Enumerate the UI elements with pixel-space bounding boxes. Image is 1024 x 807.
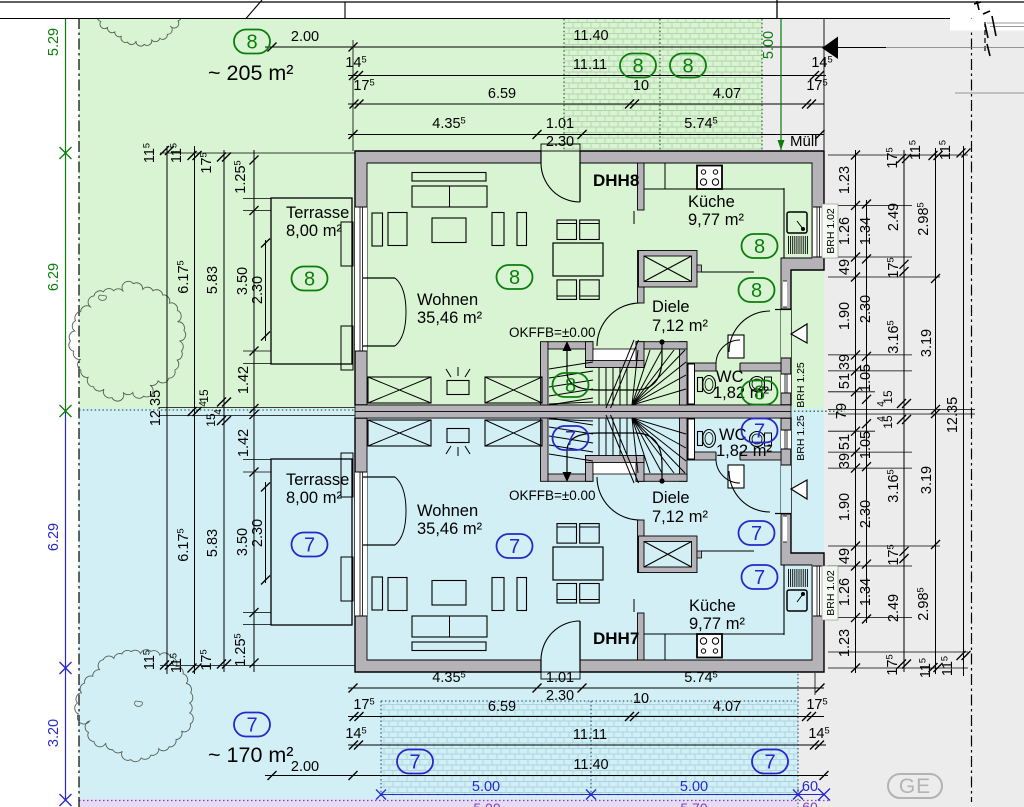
svg-text:39: 39 — [837, 453, 853, 469]
svg-text:2.49: 2.49 — [886, 203, 902, 231]
svg-text:3.19: 3.19 — [919, 329, 935, 357]
svg-text:49: 49 — [837, 548, 853, 564]
svg-text:11.40: 11.40 — [573, 28, 608, 44]
svg-text:5.00: 5.00 — [680, 779, 708, 795]
svg-text:3.50: 3.50 — [235, 267, 251, 295]
svg-text:15: 15 — [197, 389, 211, 403]
svg-text:BRH 1.25: BRH 1.25 — [795, 362, 807, 408]
svg-text:2.30: 2.30 — [858, 295, 874, 323]
svg-text:Diele: Diele — [652, 489, 690, 507]
svg-text:8,00 m²: 8,00 m² — [286, 489, 342, 507]
svg-text:~ 205 m²: ~ 205 m² — [208, 61, 293, 85]
svg-text:12.35: 12.35 — [148, 390, 164, 426]
svg-text:GE: GE — [899, 775, 931, 798]
svg-text:5.70: 5.70 — [680, 800, 707, 807]
svg-text:Müll: Müll — [790, 133, 818, 150]
svg-text:4.07: 4.07 — [713, 86, 741, 102]
svg-text:~ 170 m²: ~ 170 m² — [208, 743, 293, 767]
svg-text:7: 7 — [246, 715, 257, 737]
svg-text:8: 8 — [304, 269, 315, 291]
svg-text:Küche: Küche — [688, 193, 735, 211]
svg-text:1.90: 1.90 — [837, 302, 853, 330]
svg-text:79: 79 — [834, 403, 850, 419]
svg-text:1.01: 1.01 — [546, 116, 574, 132]
svg-text:7: 7 — [754, 421, 765, 443]
svg-text:6.59: 6.59 — [488, 86, 516, 102]
svg-text:4.07: 4.07 — [713, 699, 741, 715]
svg-text:51: 51 — [837, 434, 853, 450]
svg-text:1.42: 1.42 — [236, 366, 252, 394]
svg-text:8: 8 — [509, 267, 520, 289]
svg-text:2.30: 2.30 — [250, 519, 266, 547]
svg-text:11.11: 11.11 — [573, 727, 607, 743]
svg-text:6.29: 6.29 — [46, 263, 62, 291]
svg-text:Terrasse: Terrasse — [286, 471, 349, 489]
svg-text:8,00 m²: 8,00 m² — [286, 222, 342, 240]
svg-text:BRH 1.25: BRH 1.25 — [795, 415, 807, 461]
svg-text:7,12 m²: 7,12 m² — [652, 317, 708, 335]
svg-text:1.23: 1.23 — [837, 629, 853, 657]
svg-text:4: 4 — [198, 401, 209, 407]
svg-text:Terrasse: Terrasse — [286, 204, 349, 222]
svg-text:4: 4 — [876, 416, 887, 422]
svg-text:8: 8 — [754, 383, 765, 405]
svg-text:7: 7 — [764, 752, 775, 774]
svg-text:5.29: 5.29 — [46, 28, 62, 56]
svg-text:5.00: 5.00 — [473, 800, 500, 807]
svg-text:5.83: 5.83 — [205, 529, 221, 557]
svg-text:1.23: 1.23 — [837, 166, 853, 194]
svg-text:7: 7 — [751, 523, 762, 545]
svg-text:DHH7: DHH7 — [593, 629, 639, 648]
svg-text:35,46 m²: 35,46 m² — [417, 309, 483, 327]
svg-text:4: 4 — [876, 401, 887, 407]
svg-text:9,77 m²: 9,77 m² — [688, 211, 744, 229]
svg-text:5.83: 5.83 — [205, 266, 221, 294]
svg-text:9,77 m²: 9,77 m² — [689, 615, 745, 633]
svg-text:35,46 m²: 35,46 m² — [417, 520, 483, 538]
svg-text:5.00: 5.00 — [472, 779, 500, 795]
svg-text:60: 60 — [802, 779, 818, 795]
svg-text:6.59: 6.59 — [488, 699, 516, 715]
svg-text:Wohnen: Wohnen — [417, 291, 478, 309]
svg-text:3.19: 3.19 — [919, 466, 935, 494]
svg-text:OKFFB=±0.00: OKFFB=±0.00 — [509, 488, 596, 503]
svg-text:2.49: 2.49 — [886, 594, 902, 622]
svg-text:3.20: 3.20 — [46, 719, 62, 747]
svg-text:7: 7 — [509, 536, 520, 558]
svg-text:2.30: 2.30 — [546, 134, 574, 150]
svg-text:.: . — [796, 779, 800, 795]
svg-text:Diele: Diele — [652, 298, 690, 316]
svg-text:8: 8 — [246, 32, 257, 54]
svg-text:2.30: 2.30 — [546, 688, 574, 704]
svg-text:11.40: 11.40 — [573, 757, 608, 773]
svg-text:1.26: 1.26 — [837, 217, 853, 245]
svg-text:12.35: 12.35 — [945, 397, 961, 433]
svg-text:8: 8 — [754, 236, 765, 258]
svg-text:1.42: 1.42 — [236, 429, 252, 457]
svg-text:Wohnen: Wohnen — [417, 502, 478, 520]
svg-text:1.01: 1.01 — [546, 670, 574, 686]
svg-text:39: 39 — [837, 354, 853, 370]
svg-text:7: 7 — [409, 752, 420, 774]
svg-text:OKFFB=±0.00: OKFFB=±0.00 — [509, 325, 596, 340]
svg-text:BRH 1.02: BRH 1.02 — [825, 208, 837, 254]
svg-text:1.34: 1.34 — [858, 578, 874, 606]
svg-text:8: 8 — [751, 280, 762, 302]
svg-text:1,82 m²: 1,82 m² — [716, 442, 772, 460]
svg-text:2.00: 2.00 — [291, 759, 319, 775]
svg-text:49: 49 — [837, 259, 853, 275]
svg-text:7,12 m²: 7,12 m² — [652, 508, 708, 526]
svg-text:10: 10 — [633, 691, 649, 707]
svg-text:7: 7 — [304, 535, 315, 557]
svg-text:6.29: 6.29 — [46, 523, 62, 551]
svg-text:8: 8 — [565, 375, 576, 397]
svg-text:7: 7 — [754, 567, 765, 589]
svg-text:4: 4 — [213, 409, 224, 415]
svg-text:BRH 1.02: BRH 1.02 — [825, 570, 837, 616]
svg-text:51: 51 — [837, 373, 853, 389]
svg-text:2.30: 2.30 — [250, 276, 266, 304]
svg-text:1.34: 1.34 — [858, 217, 874, 245]
svg-text:DHH8: DHH8 — [593, 171, 639, 190]
svg-text:1.05: 1.05 — [858, 364, 874, 392]
svg-text:Küche: Küche — [689, 597, 736, 615]
svg-text:8: 8 — [632, 56, 643, 78]
svg-text:8: 8 — [682, 56, 693, 78]
svg-text:2.30: 2.30 — [858, 500, 874, 528]
svg-text:7: 7 — [565, 428, 576, 450]
svg-text:1.05: 1.05 — [858, 431, 874, 459]
svg-text:5.00: 5.00 — [761, 31, 777, 59]
svg-text:1.90: 1.90 — [837, 493, 853, 521]
svg-text:2.00: 2.00 — [291, 29, 319, 45]
svg-text:3.50: 3.50 — [235, 528, 251, 556]
svg-text:1.26: 1.26 — [837, 578, 853, 606]
svg-text:60: 60 — [802, 799, 818, 807]
svg-text:10: 10 — [633, 78, 649, 94]
svg-text:11.11: 11.11 — [573, 57, 607, 73]
